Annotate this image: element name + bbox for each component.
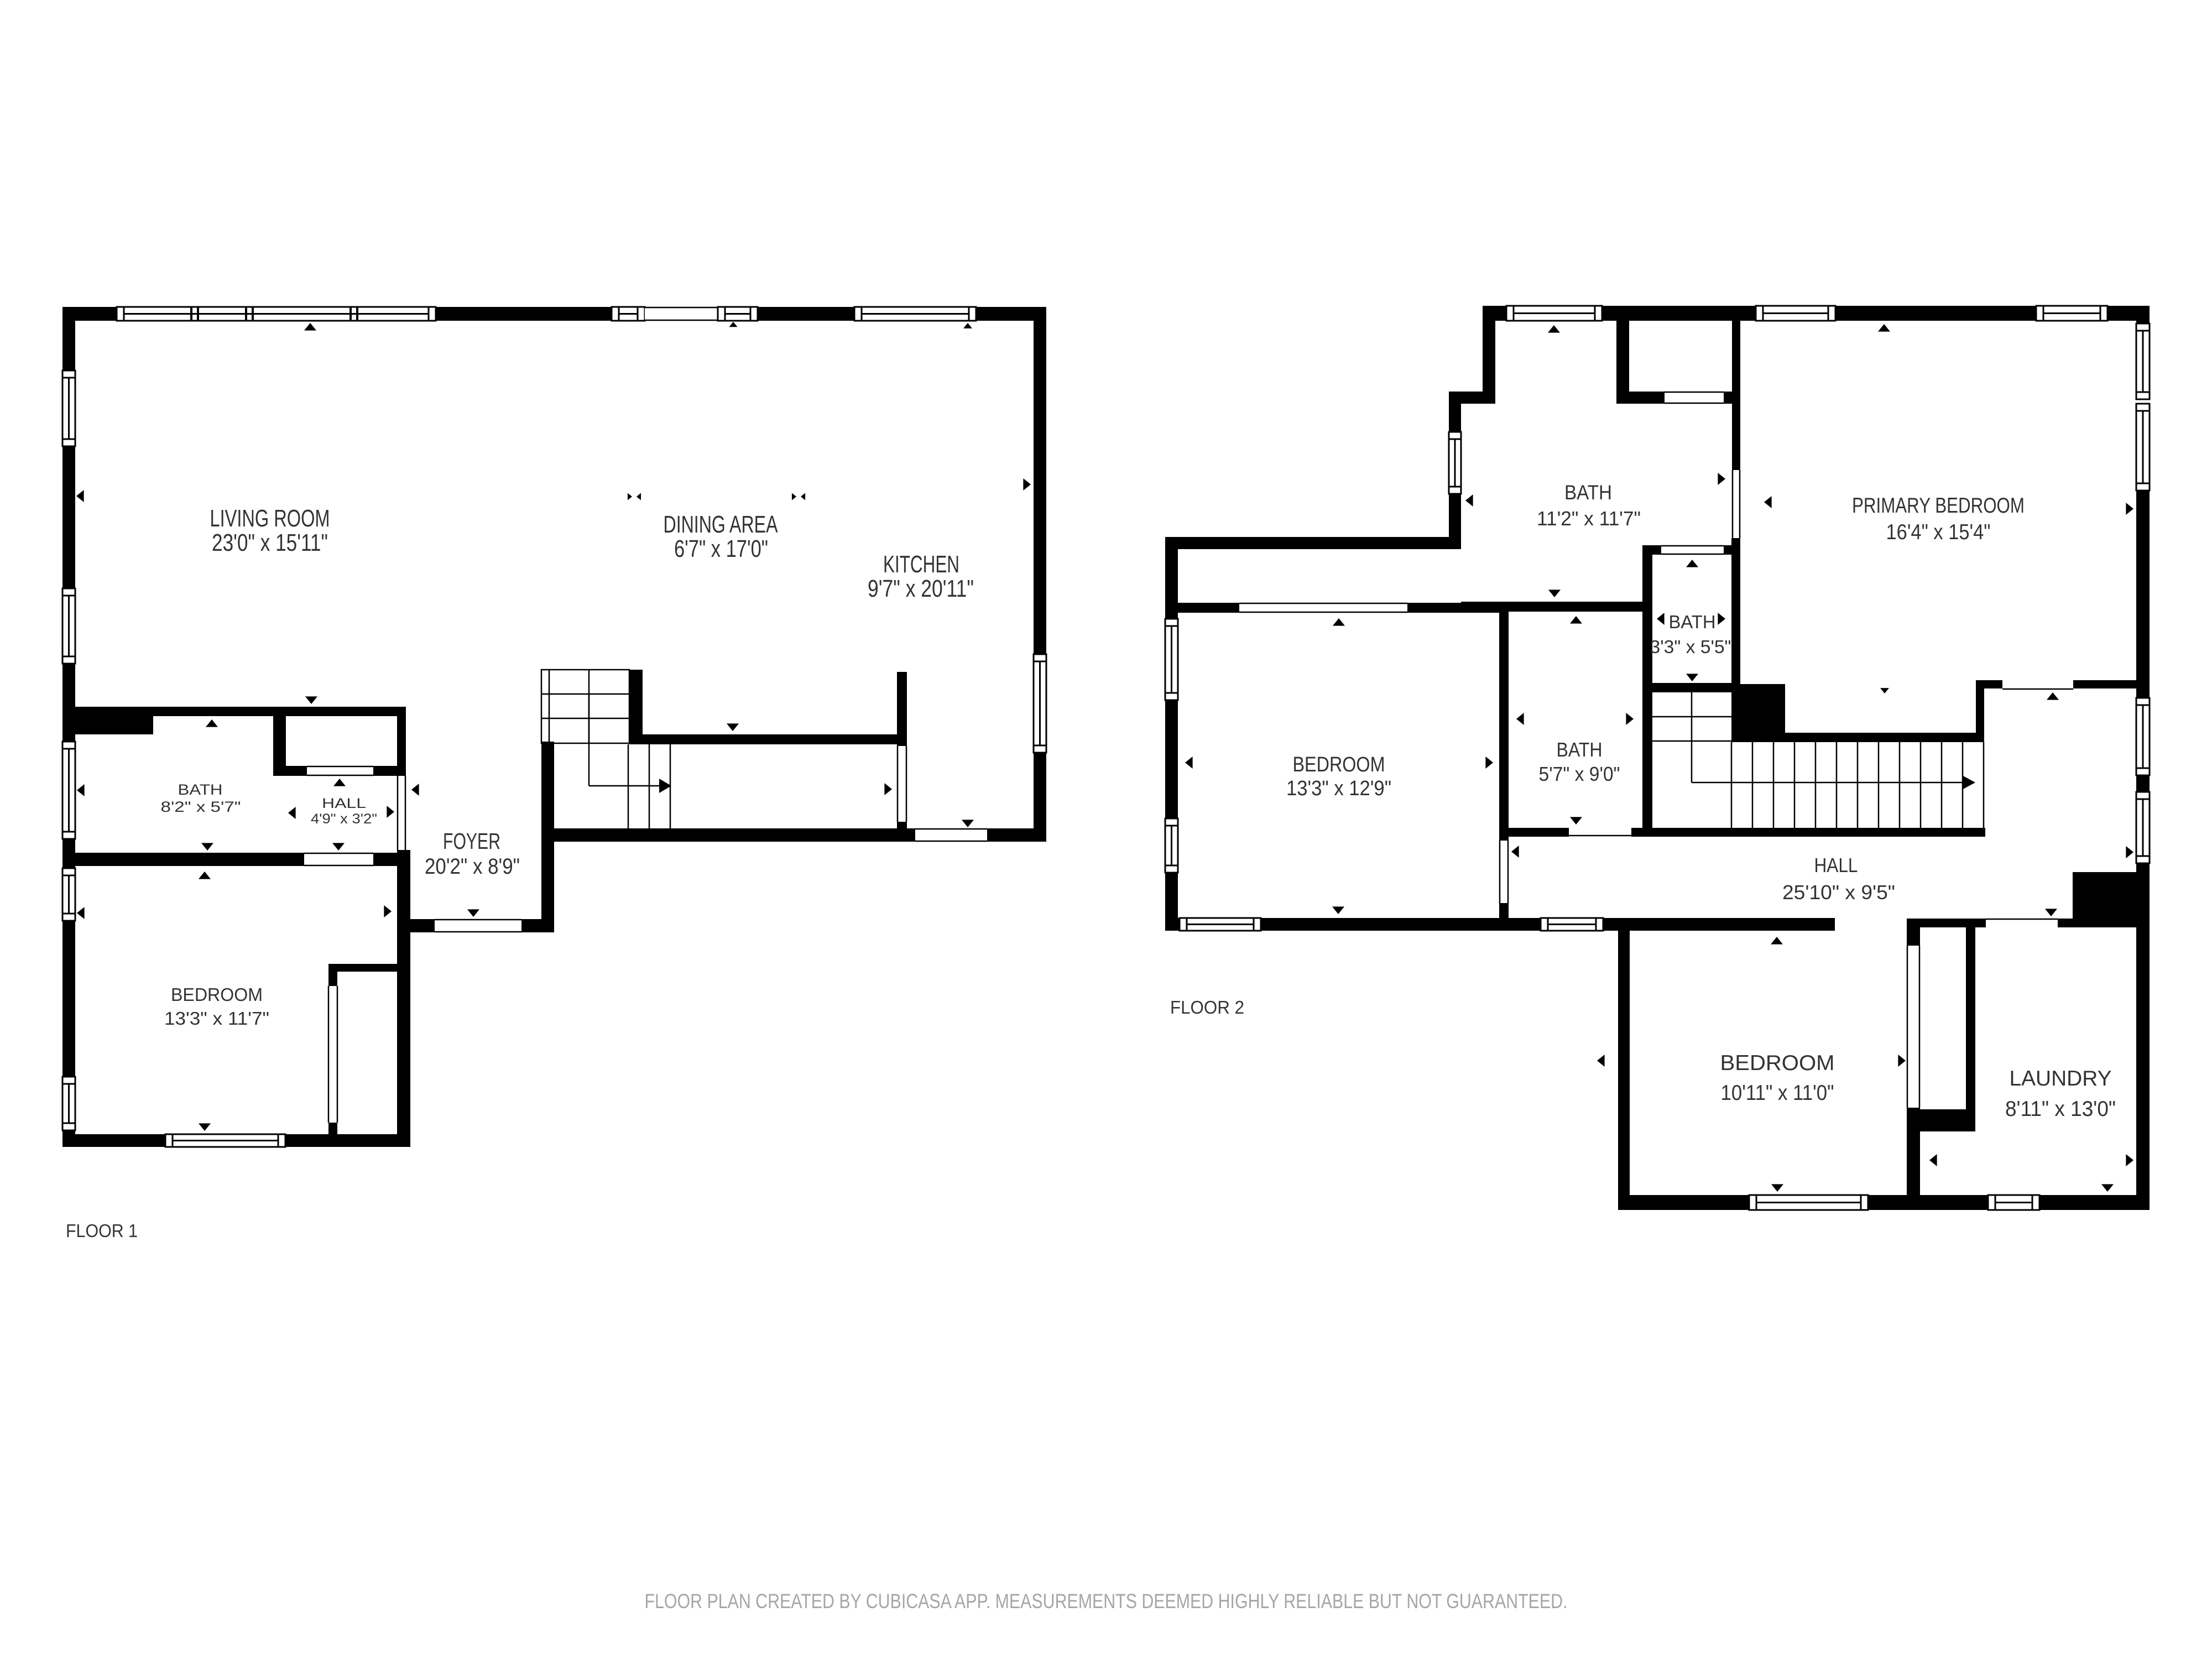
- svg-text:6'7" x 17'0": 6'7" x 17'0": [674, 535, 768, 562]
- svg-text:20'2" x 8'9": 20'2" x 8'9": [425, 854, 520, 879]
- svg-text:KITCHEN: KITCHEN: [883, 551, 959, 578]
- svg-text:8'11" x 13'0": 8'11" x 13'0": [2005, 1097, 2116, 1121]
- svg-text:9'7" x 20'11": 9'7" x 20'11": [868, 575, 974, 602]
- svg-text:5'7" x 9'0": 5'7" x 9'0": [1539, 763, 1620, 785]
- svg-text:13'3" x 12'9": 13'3" x 12'9": [1286, 777, 1391, 800]
- svg-text:BEDROOM: BEDROOM: [171, 984, 263, 1005]
- svg-text:23'0" x 15'11": 23'0" x 15'11": [212, 529, 328, 556]
- svg-text:8'2" x 5'7": 8'2" x 5'7": [161, 799, 241, 815]
- svg-text:BATH: BATH: [1669, 612, 1716, 632]
- svg-text:11'2" x 11'7": 11'2" x 11'7": [1537, 507, 1641, 530]
- svg-text:FLOOR 2: FLOOR 2: [1170, 997, 1244, 1018]
- svg-text:HALL: HALL: [1814, 854, 1858, 877]
- svg-text:FLOOR 1: FLOOR 1: [66, 1220, 138, 1241]
- svg-text:BEDROOM: BEDROOM: [1720, 1051, 1835, 1075]
- svg-text:LAUNDRY: LAUNDRY: [2010, 1067, 2112, 1091]
- svg-text:FOYER: FOYER: [443, 828, 500, 854]
- svg-text:PRIMARY BEDROOM: PRIMARY BEDROOM: [1852, 494, 2025, 518]
- svg-text:BATH: BATH: [178, 781, 223, 798]
- svg-text:BEDROOM: BEDROOM: [1293, 753, 1385, 776]
- svg-text:HALL: HALL: [322, 796, 366, 811]
- svg-text:FLOOR PLAN CREATED BY CUBICASA: FLOOR PLAN CREATED BY CUBICASA APP. MEAS…: [645, 1590, 1568, 1613]
- svg-text:3'3" x 5'5": 3'3" x 5'5": [1650, 637, 1731, 657]
- svg-text:16'4" x 15'4": 16'4" x 15'4": [1886, 520, 1991, 544]
- svg-text:25'10" x 9'5": 25'10" x 9'5": [1782, 881, 1895, 904]
- svg-text:10'11" x 11'0": 10'11" x 11'0": [1721, 1081, 1834, 1105]
- svg-text:13'3" x 11'7": 13'3" x 11'7": [164, 1008, 269, 1029]
- svg-text:BATH: BATH: [1564, 481, 1612, 504]
- svg-text:BATH: BATH: [1557, 738, 1603, 761]
- svg-text:4'9" x 3'2": 4'9" x 3'2": [311, 811, 377, 827]
- svg-text:DINING AREA: DINING AREA: [664, 511, 778, 538]
- svg-text:LIVING ROOM: LIVING ROOM: [210, 505, 330, 532]
